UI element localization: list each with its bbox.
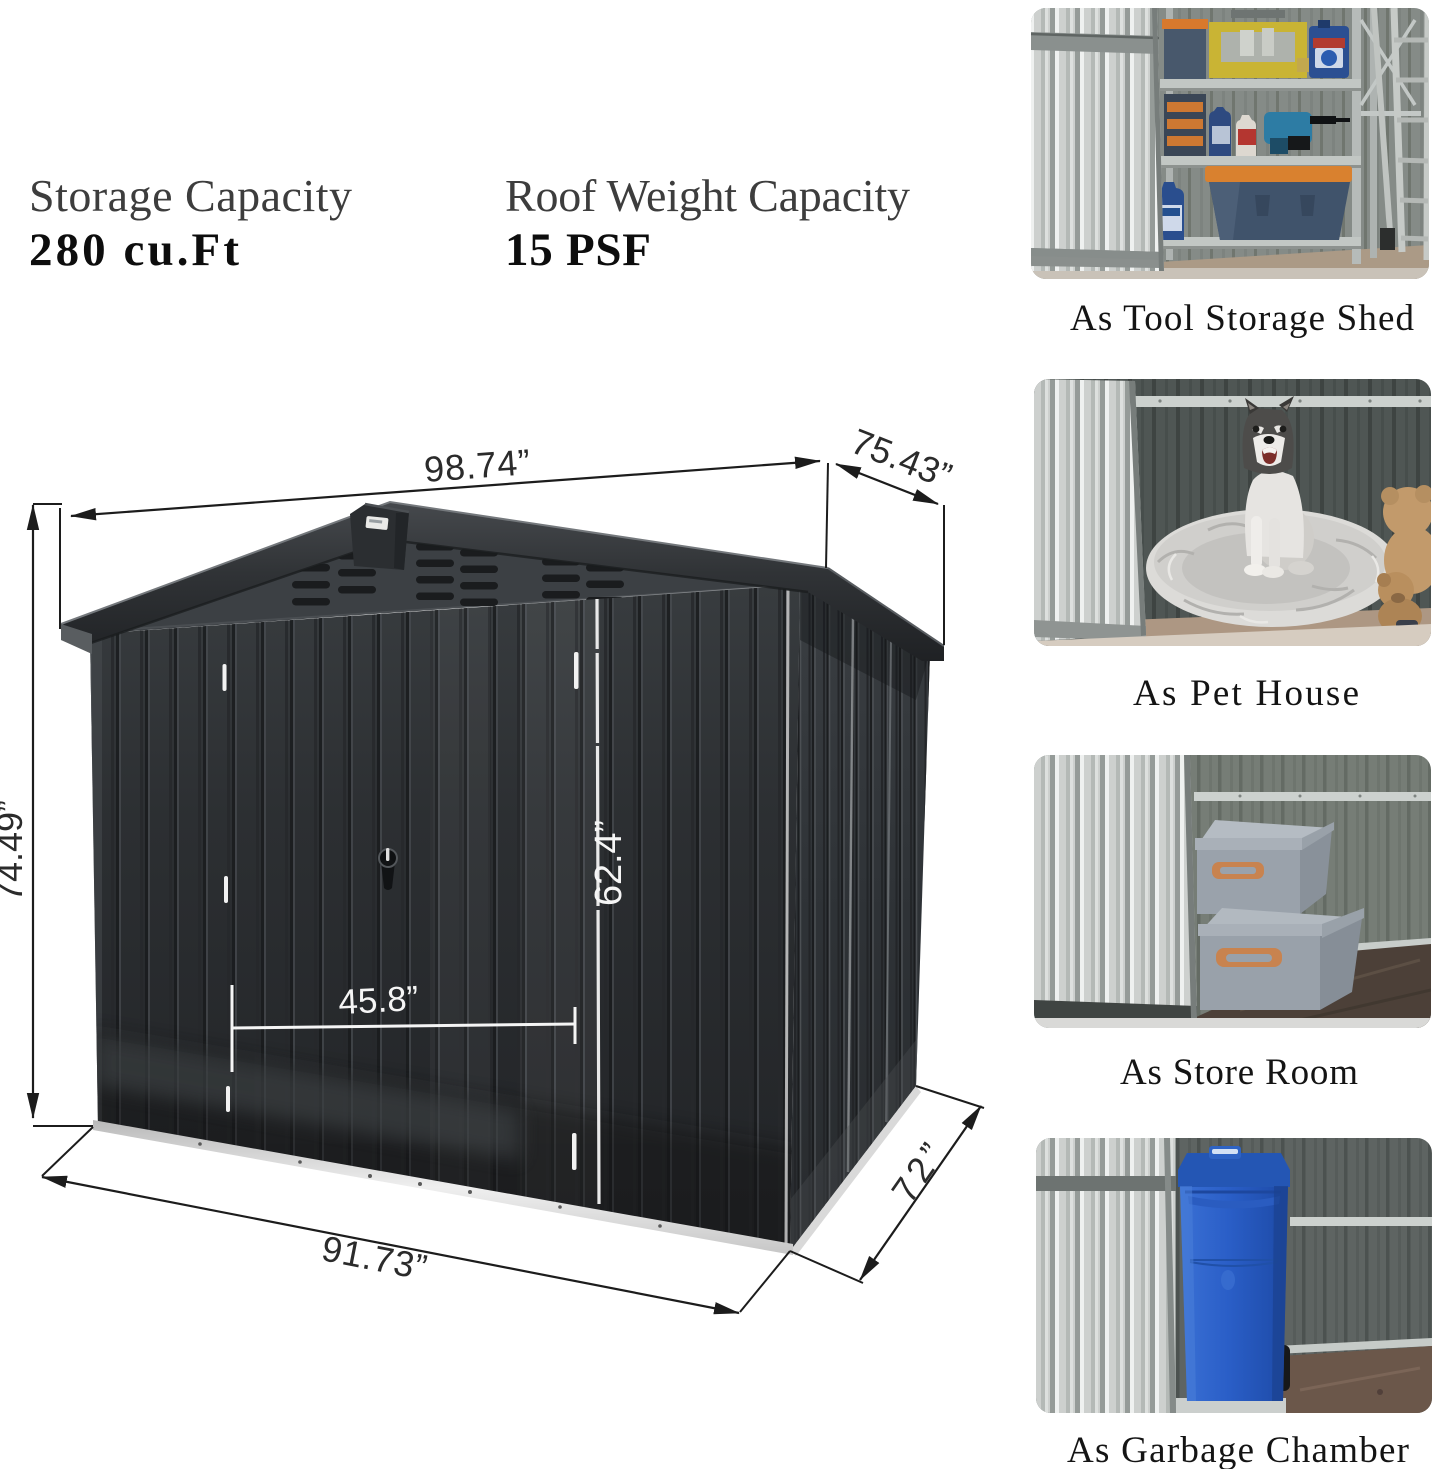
svg-text:74.49”: 74.49” <box>0 800 30 902</box>
svg-text:72”: 72” <box>883 1136 952 1210</box>
svg-text:As Garbage Chamber: As Garbage Chamber <box>1067 1430 1409 1469</box>
svg-text:280 cu.Ft: 280 cu.Ft <box>29 224 239 276</box>
svg-text:15 PSF: 15 PSF <box>505 224 651 276</box>
svg-text:As Store Room: As Store Room <box>1120 1052 1358 1093</box>
svg-text:Roof Weight Capacity: Roof Weight Capacity <box>505 170 910 221</box>
svg-text:As Pet House: As Pet House <box>1133 673 1359 714</box>
svg-text:75.43”: 75.43” <box>846 420 958 496</box>
svg-text:62.4”: 62.4” <box>588 820 630 906</box>
svg-text:As Tool Storage Shed: As Tool Storage Shed <box>1070 298 1415 339</box>
svg-text:Storage Capacity: Storage Capacity <box>29 170 352 221</box>
svg-text:98.74”: 98.74” <box>423 441 532 490</box>
svg-text:45.8”: 45.8” <box>337 979 419 1022</box>
svg-text:91.73”: 91.73” <box>318 1227 430 1287</box>
